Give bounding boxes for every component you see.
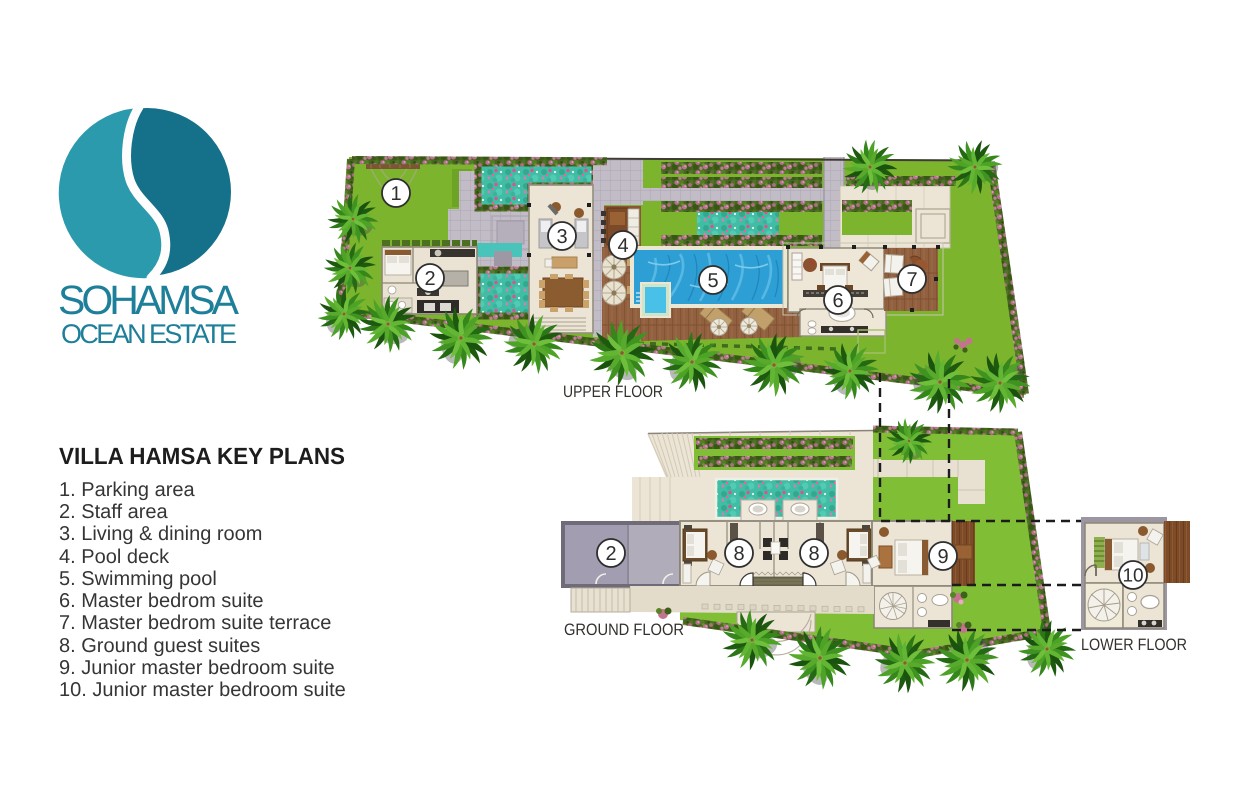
- svg-text:1. Parking area: 1. Parking area: [59, 479, 196, 501]
- svg-text:3: 3: [556, 226, 567, 248]
- svg-text:9. Junior master bedroom suite: 9. Junior master bedroom suite: [59, 657, 335, 679]
- svg-text:1: 1: [390, 183, 401, 205]
- svg-text:8: 8: [733, 543, 744, 565]
- svg-text:LOWER FLOOR: LOWER FLOOR: [1081, 636, 1187, 654]
- svg-text:2. Staff area: 2. Staff area: [59, 501, 168, 523]
- svg-text:5: 5: [707, 270, 718, 292]
- svg-text:GROUND FLOOR: GROUND FLOOR: [564, 621, 684, 639]
- svg-text:3. Living & dining room: 3. Living & dining room: [59, 523, 262, 545]
- svg-text:4: 4: [617, 235, 628, 257]
- svg-text:10. Junior master bedroom suit: 10. Junior master bedroom suite: [59, 679, 346, 701]
- svg-text:2: 2: [424, 268, 435, 290]
- svg-text:4. Pool deck: 4. Pool deck: [59, 546, 170, 568]
- svg-text:10: 10: [1122, 566, 1143, 587]
- svg-text:9: 9: [937, 546, 948, 568]
- svg-text:8: 8: [808, 543, 819, 565]
- svg-text:5. Swimming pool: 5. Swimming pool: [59, 568, 217, 590]
- svg-text:6: 6: [832, 290, 843, 312]
- svg-text:OCEAN ESTATE: OCEAN ESTATE: [61, 319, 237, 349]
- svg-text:8. Ground guest suites: 8. Ground guest suites: [59, 635, 260, 657]
- svg-text:7. Master bedrom suite terrace: 7. Master bedrom suite terrace: [59, 612, 331, 634]
- svg-text:7: 7: [906, 269, 917, 291]
- svg-text:SOHAMSA: SOHAMSA: [58, 277, 240, 323]
- svg-text:UPPER FLOOR: UPPER FLOOR: [563, 383, 663, 401]
- svg-text:2: 2: [605, 543, 616, 565]
- svg-text:VILLA HAMSA KEY PLANS: VILLA HAMSA KEY PLANS: [59, 443, 345, 469]
- svg-text:6. Master bedrom suite: 6. Master bedrom suite: [59, 590, 264, 612]
